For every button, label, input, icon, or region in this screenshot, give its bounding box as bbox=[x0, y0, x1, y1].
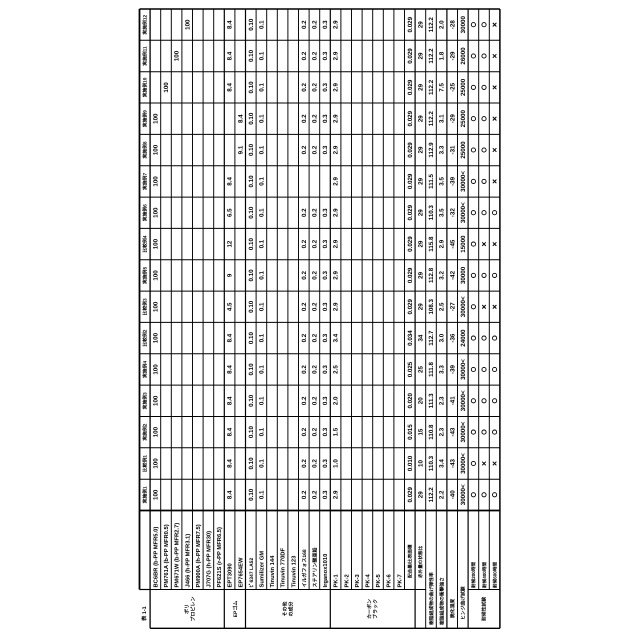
svg-text:0.029: 0.029 bbox=[407, 236, 414, 252]
svg-text:0.029: 0.029 bbox=[407, 110, 414, 126]
svg-text:100: 100 bbox=[153, 301, 160, 312]
svg-text:0.029: 0.029 bbox=[407, 16, 414, 32]
svg-text:0.2: 0.2 bbox=[301, 333, 308, 342]
svg-text:J707G (h-PP MFR30): J707G (h-PP MFR30) bbox=[206, 531, 213, 588]
svg-text:0.2: 0.2 bbox=[312, 83, 319, 92]
svg-text:0.10: 0.10 bbox=[248, 457, 255, 470]
svg-text:0.2: 0.2 bbox=[312, 271, 319, 280]
svg-text:8.4: 8.4 bbox=[227, 51, 234, 60]
svg-text:PK-1: PK-1 bbox=[334, 574, 340, 588]
svg-text:0.2: 0.2 bbox=[312, 208, 319, 217]
svg-text:0.2: 0.2 bbox=[301, 208, 308, 217]
svg-text:2.9: 2.9 bbox=[333, 51, 340, 60]
svg-text:112.2: 112.2 bbox=[428, 48, 435, 64]
svg-text:112.2: 112.2 bbox=[428, 487, 435, 503]
svg-text:100: 100 bbox=[153, 176, 160, 187]
svg-text:0.2: 0.2 bbox=[301, 459, 308, 468]
svg-text:29: 29 bbox=[418, 83, 425, 90]
svg-text:10: 10 bbox=[418, 460, 425, 467]
svg-text:8.4: 8.4 bbox=[227, 333, 234, 342]
svg-text:Sumilizer GM: Sumilizer GM bbox=[259, 551, 266, 588]
svg-text:Tinuvin 123: Tinuvin 123 bbox=[290, 555, 297, 588]
svg-text:耐候400時間: 耐候400時間 bbox=[482, 562, 487, 588]
svg-text:30000<: 30000< bbox=[460, 359, 467, 380]
svg-text:30000<: 30000< bbox=[460, 421, 467, 442]
svg-text:実施例4: 実施例4 bbox=[141, 361, 148, 378]
svg-text:0.1: 0.1 bbox=[259, 114, 266, 123]
svg-text:0.2: 0.2 bbox=[301, 83, 308, 92]
svg-text:0.10: 0.10 bbox=[248, 81, 255, 94]
svg-text:110.3: 110.3 bbox=[428, 455, 435, 471]
svg-text:15000: 15000 bbox=[460, 235, 467, 253]
svg-text:3.2: 3.2 bbox=[439, 271, 446, 280]
svg-text:29: 29 bbox=[418, 240, 425, 247]
svg-text:25: 25 bbox=[418, 366, 425, 373]
svg-text:0.3: 0.3 bbox=[322, 114, 329, 123]
svg-text:PK-5: PK-5 bbox=[376, 574, 382, 588]
svg-text:PF621S (r-PP MFR6.5): PF621S (r-PP MFR6.5) bbox=[216, 527, 223, 588]
svg-text:8.4: 8.4 bbox=[237, 114, 244, 123]
svg-text:26000: 26000 bbox=[460, 47, 467, 65]
svg-text:-39: -39 bbox=[449, 176, 456, 186]
svg-text:配合墨/比表面積: 配合墨/比表面積 bbox=[407, 544, 413, 578]
svg-text:0.2: 0.2 bbox=[301, 490, 308, 499]
svg-text:0.029: 0.029 bbox=[407, 142, 414, 158]
svg-text:実施例5: 実施例5 bbox=[141, 267, 148, 284]
svg-text:2.9: 2.9 bbox=[333, 302, 340, 311]
svg-text:20: 20 bbox=[418, 397, 425, 404]
svg-text:比較例1: 比較例1 bbox=[141, 455, 148, 472]
svg-text:100: 100 bbox=[153, 270, 160, 281]
svg-text:2.9: 2.9 bbox=[333, 177, 340, 186]
svg-text:EP7654EW: EP7654EW bbox=[237, 557, 244, 587]
svg-text:0.2: 0.2 bbox=[301, 114, 308, 123]
svg-text:30000<: 30000< bbox=[460, 484, 467, 505]
svg-text:30000<: 30000< bbox=[460, 296, 467, 317]
svg-text:100: 100 bbox=[153, 332, 160, 343]
svg-text:0.3: 0.3 bbox=[322, 427, 329, 436]
svg-text:0.1: 0.1 bbox=[259, 51, 266, 60]
svg-text:0.2: 0.2 bbox=[312, 396, 319, 405]
svg-text:2.3: 2.3 bbox=[439, 427, 446, 436]
svg-text:30000<: 30000< bbox=[460, 171, 467, 192]
svg-text:4.5: 4.5 bbox=[227, 302, 234, 311]
svg-text:0.3: 0.3 bbox=[322, 365, 329, 374]
svg-text:脆化温度: 脆化温度 bbox=[449, 599, 456, 619]
svg-text:カーボン: カーボン bbox=[366, 599, 373, 619]
svg-text:3.1: 3.1 bbox=[439, 114, 446, 123]
svg-text:0.10: 0.10 bbox=[248, 394, 255, 407]
svg-text:2.0: 2.0 bbox=[333, 396, 340, 405]
svg-text:0.10: 0.10 bbox=[248, 426, 255, 439]
svg-text:112.9: 112.9 bbox=[428, 142, 435, 158]
svg-text:3.5: 3.5 bbox=[439, 208, 446, 217]
svg-text:耐候600時間: 耐候600時間 bbox=[492, 562, 497, 588]
svg-text:7.5: 7.5 bbox=[439, 83, 446, 92]
svg-text:0.2: 0.2 bbox=[312, 302, 319, 311]
svg-text:111.8: 111.8 bbox=[428, 362, 435, 377]
svg-text:0.3: 0.3 bbox=[322, 271, 329, 280]
svg-text:-43: -43 bbox=[449, 458, 456, 468]
svg-text:6.5: 6.5 bbox=[227, 208, 234, 217]
svg-text:25000: 25000 bbox=[460, 141, 467, 159]
svg-text:PK-6: PK-6 bbox=[386, 574, 393, 588]
svg-text:-45: -45 bbox=[449, 239, 456, 249]
svg-text:29: 29 bbox=[418, 115, 425, 122]
svg-text:2.9: 2.9 bbox=[333, 271, 340, 280]
svg-text:PM761A (b-PP MFR0.5): PM761A (b-PP MFR0.5) bbox=[163, 524, 170, 587]
svg-text:110.8: 110.8 bbox=[428, 424, 435, 440]
svg-text:0.2: 0.2 bbox=[301, 271, 308, 280]
svg-text:112.2: 112.2 bbox=[428, 111, 435, 127]
svg-text:29: 29 bbox=[418, 21, 425, 28]
svg-text:110.3: 110.3 bbox=[428, 205, 435, 221]
svg-text:29: 29 bbox=[418, 303, 425, 310]
svg-text:0.1: 0.1 bbox=[259, 177, 266, 186]
svg-text:2.2: 2.2 bbox=[439, 490, 446, 499]
svg-text:0.10: 0.10 bbox=[248, 238, 255, 251]
svg-text:3.4: 3.4 bbox=[439, 459, 446, 468]
svg-text:30000: 30000 bbox=[460, 266, 467, 284]
svg-text:0.3: 0.3 bbox=[322, 333, 329, 342]
svg-text:8.4: 8.4 bbox=[227, 83, 234, 92]
svg-text:112.7: 112.7 bbox=[428, 330, 435, 346]
svg-text:比較例3: 比較例3 bbox=[141, 298, 148, 315]
svg-text:0.3: 0.3 bbox=[322, 396, 329, 405]
svg-text:-41: -41 bbox=[449, 396, 456, 406]
svg-text:30000<: 30000< bbox=[460, 390, 467, 411]
svg-text:0.1: 0.1 bbox=[259, 83, 266, 92]
svg-text:100: 100 bbox=[153, 458, 160, 469]
svg-text:0.2: 0.2 bbox=[301, 239, 308, 248]
svg-text:その他: その他 bbox=[282, 601, 289, 616]
svg-text:0.2: 0.2 bbox=[301, 20, 308, 29]
svg-text:0.029: 0.029 bbox=[407, 267, 414, 283]
svg-text:0.10: 0.10 bbox=[248, 269, 255, 282]
svg-text:0.3: 0.3 bbox=[322, 459, 329, 468]
svg-text:-40: -40 bbox=[449, 490, 456, 500]
svg-text:100: 100 bbox=[153, 113, 160, 124]
svg-text:実施例9: 実施例9 bbox=[141, 110, 148, 127]
svg-text:0.1: 0.1 bbox=[259, 333, 266, 342]
svg-text:0.10: 0.10 bbox=[248, 175, 255, 188]
svg-text:100: 100 bbox=[174, 50, 181, 61]
svg-text:0.10: 0.10 bbox=[248, 143, 255, 156]
svg-text:3.5: 3.5 bbox=[439, 177, 446, 186]
svg-text:の成分: の成分 bbox=[288, 601, 295, 616]
svg-text:イルガフォス168: イルガフォス168 bbox=[301, 549, 308, 587]
svg-text:0.10: 0.10 bbox=[248, 363, 255, 376]
svg-text:100: 100 bbox=[153, 426, 160, 437]
svg-text:表 1-1: 表 1-1 bbox=[141, 606, 148, 622]
svg-text:2.9: 2.9 bbox=[333, 83, 340, 92]
svg-text:実施例8: 実施例8 bbox=[141, 141, 148, 158]
svg-text:108.3: 108.3 bbox=[428, 298, 435, 314]
svg-text:-31: -31 bbox=[449, 145, 456, 155]
svg-text:0.1: 0.1 bbox=[259, 20, 266, 29]
svg-text:実施例6: 実施例6 bbox=[141, 204, 148, 221]
svg-text:29: 29 bbox=[418, 52, 425, 59]
svg-text:-32: -32 bbox=[449, 208, 456, 218]
svg-text:0.2: 0.2 bbox=[312, 365, 319, 374]
svg-text:112.8: 112.8 bbox=[428, 267, 435, 283]
svg-text:0.1: 0.1 bbox=[259, 302, 266, 311]
svg-text:0.3: 0.3 bbox=[322, 51, 329, 60]
svg-text:100: 100 bbox=[153, 207, 160, 218]
svg-text:0.1: 0.1 bbox=[259, 365, 266, 374]
svg-text:29: 29 bbox=[418, 209, 425, 216]
svg-text:実施例7: 実施例7 bbox=[141, 173, 148, 190]
svg-text:29: 29 bbox=[418, 491, 425, 498]
svg-text:8.4: 8.4 bbox=[227, 20, 234, 29]
svg-text:-25: -25 bbox=[449, 82, 456, 92]
svg-text:0.2: 0.2 bbox=[301, 302, 308, 311]
svg-text:100: 100 bbox=[163, 82, 170, 93]
svg-text:-36: -36 bbox=[449, 333, 456, 343]
svg-text:115.8: 115.8 bbox=[428, 236, 435, 252]
svg-text:8.4: 8.4 bbox=[227, 459, 234, 468]
svg-text:3.4: 3.4 bbox=[333, 333, 340, 342]
svg-text:0.029: 0.029 bbox=[407, 48, 414, 64]
svg-text:PM900A (h-PP MFR7.5): PM900A (h-PP MFR7.5) bbox=[195, 524, 202, 587]
svg-text:0.2: 0.2 bbox=[312, 239, 319, 248]
svg-text:100: 100 bbox=[184, 19, 191, 30]
svg-text:PM671W (b-PP MFR2.7): PM671W (b-PP MFR2.7) bbox=[174, 523, 181, 588]
svg-text:J466 (h-PP MFR3.1): J466 (h-PP MFR3.1) bbox=[184, 534, 191, 588]
svg-text:29: 29 bbox=[418, 177, 425, 184]
svg-text:30000: 30000 bbox=[460, 16, 467, 34]
svg-text:0.3: 0.3 bbox=[322, 490, 329, 499]
svg-text:-43: -43 bbox=[449, 427, 456, 437]
svg-text:PK-7: PK-7 bbox=[397, 574, 403, 587]
svg-text:2.9: 2.9 bbox=[333, 145, 340, 154]
svg-text:8.4: 8.4 bbox=[227, 490, 234, 499]
svg-text:100: 100 bbox=[153, 238, 160, 249]
svg-text:100: 100 bbox=[153, 395, 160, 406]
svg-text:2.9: 2.9 bbox=[333, 490, 340, 499]
svg-text:25000: 25000 bbox=[460, 110, 467, 128]
svg-text:2.5: 2.5 bbox=[439, 302, 446, 311]
svg-text:0.3: 0.3 bbox=[322, 83, 329, 92]
svg-text:12: 12 bbox=[227, 240, 234, 247]
svg-text:0.10: 0.10 bbox=[248, 112, 255, 125]
svg-text:0.029: 0.029 bbox=[407, 173, 414, 189]
svg-text:8.4: 8.4 bbox=[227, 427, 234, 436]
svg-text:0.010: 0.010 bbox=[407, 455, 414, 471]
svg-text:29: 29 bbox=[418, 146, 425, 153]
svg-text:100: 100 bbox=[153, 489, 160, 500]
svg-text:実施例3: 実施例3 bbox=[141, 392, 148, 409]
svg-text:3.3: 3.3 bbox=[439, 145, 446, 154]
svg-text:25000: 25000 bbox=[460, 78, 467, 96]
svg-text:2.9: 2.9 bbox=[333, 20, 340, 29]
svg-text:比較例4: 比較例4 bbox=[141, 235, 148, 252]
svg-text:ブラック: ブラック bbox=[372, 599, 379, 619]
svg-text:0.10: 0.10 bbox=[248, 206, 255, 219]
svg-text:0.1: 0.1 bbox=[259, 271, 266, 280]
svg-text:2.0: 2.0 bbox=[439, 20, 446, 29]
svg-text:2.9: 2.9 bbox=[333, 114, 340, 123]
svg-text:0.1: 0.1 bbox=[259, 145, 266, 154]
svg-text:30000<: 30000< bbox=[460, 453, 467, 474]
svg-text:0.2: 0.2 bbox=[301, 51, 308, 60]
svg-text:-27: -27 bbox=[449, 302, 456, 312]
svg-text:112.2: 112.2 bbox=[428, 17, 435, 33]
svg-text:0.1: 0.1 bbox=[259, 396, 266, 405]
svg-text:0.1: 0.1 bbox=[259, 239, 266, 248]
svg-text:1.5: 1.5 bbox=[333, 427, 340, 436]
svg-text:0.1: 0.1 bbox=[259, 490, 266, 499]
svg-text:8.4: 8.4 bbox=[227, 396, 234, 405]
svg-text:0.2: 0.2 bbox=[312, 333, 319, 342]
svg-text:34: 34 bbox=[418, 334, 425, 341]
svg-text:9: 9 bbox=[227, 273, 234, 277]
svg-text:0.1: 0.1 bbox=[259, 208, 266, 217]
svg-text:8.4: 8.4 bbox=[227, 177, 234, 186]
svg-text:0.10: 0.10 bbox=[248, 18, 255, 31]
svg-text:0.020: 0.020 bbox=[407, 392, 414, 408]
svg-text:2.5: 2.5 bbox=[333, 365, 340, 374]
svg-text:耐候200時間: 耐候200時間 bbox=[471, 562, 476, 588]
svg-text:111.3: 111.3 bbox=[428, 393, 435, 408]
svg-text:0.029: 0.029 bbox=[407, 298, 414, 314]
svg-text:PK-3: PK-3 bbox=[354, 574, 361, 588]
svg-text:0.1: 0.1 bbox=[259, 427, 266, 436]
svg-text:-29: -29 bbox=[449, 51, 456, 61]
svg-text:0.029: 0.029 bbox=[407, 204, 414, 220]
svg-text:0.10: 0.10 bbox=[248, 300, 255, 313]
svg-text:2.9: 2.9 bbox=[439, 239, 446, 248]
svg-text:0.2: 0.2 bbox=[312, 145, 319, 154]
svg-text:樹脂組成物の衝撃強さ: 樹脂組成物の衝撃強さ bbox=[438, 577, 445, 625]
svg-text:0.2: 0.2 bbox=[301, 396, 308, 405]
svg-text:Tinuvin 144: Tinuvin 144 bbox=[269, 555, 276, 588]
svg-text:112.2: 112.2 bbox=[428, 79, 435, 95]
svg-text:30000<: 30000< bbox=[460, 202, 467, 223]
svg-text:0.3: 0.3 bbox=[322, 239, 329, 248]
svg-text:Tinuvin 770DF: Tinuvin 770DF bbox=[280, 548, 287, 588]
svg-text:0.10: 0.10 bbox=[248, 488, 255, 501]
svg-text:0.3: 0.3 bbox=[322, 145, 329, 154]
svg-text:0.2: 0.2 bbox=[312, 20, 319, 29]
svg-text:実施例2: 実施例2 bbox=[141, 423, 148, 440]
svg-text:赤外量の状態比: 赤外量の状態比 bbox=[417, 545, 423, 578]
svg-text:0.2: 0.2 bbox=[312, 459, 319, 468]
svg-text:BC6BR (b-PP MFR5.0): BC6BR (b-PP MFR5.0) bbox=[153, 527, 160, 588]
svg-text:2.3: 2.3 bbox=[439, 396, 446, 405]
svg-text:100: 100 bbox=[153, 364, 160, 375]
svg-text:実施例11: 実施例11 bbox=[141, 46, 148, 66]
svg-text:Irganox1010: Irganox1010 bbox=[322, 554, 329, 588]
svg-text:111.5: 111.5 bbox=[428, 173, 435, 188]
svg-text:0.2: 0.2 bbox=[312, 51, 319, 60]
svg-text:実施例12: 実施例12 bbox=[141, 15, 148, 35]
svg-text:0.2: 0.2 bbox=[312, 427, 319, 436]
svg-text:0.2: 0.2 bbox=[301, 365, 308, 374]
svg-text:-29: -29 bbox=[449, 114, 456, 124]
svg-text:2.9: 2.9 bbox=[333, 208, 340, 217]
svg-text:EPT3090: EPT3090 bbox=[227, 563, 234, 587]
svg-text:0.029: 0.029 bbox=[407, 486, 414, 502]
svg-text:0.1: 0.1 bbox=[259, 459, 266, 468]
svg-text:EPゴム: EPゴム bbox=[232, 601, 239, 618]
svg-text:1.8: 1.8 bbox=[439, 51, 446, 60]
svg-text:9.1: 9.1 bbox=[237, 145, 244, 154]
svg-text:0.025: 0.025 bbox=[407, 361, 414, 377]
svg-text:-42: -42 bbox=[449, 270, 456, 280]
svg-text:29: 29 bbox=[418, 271, 425, 278]
svg-text:-28: -28 bbox=[449, 20, 456, 30]
svg-text:0.015: 0.015 bbox=[407, 424, 414, 440]
svg-text:3.0: 3.0 bbox=[439, 333, 446, 342]
svg-text:0.2: 0.2 bbox=[301, 427, 308, 436]
svg-text:ヒンジ曲げ試験: ヒンジ曲げ試験 bbox=[460, 586, 467, 620]
svg-text:比較例2: 比較例2 bbox=[141, 329, 148, 346]
svg-text:24000: 24000 bbox=[460, 329, 467, 347]
svg-text:0.10: 0.10 bbox=[248, 332, 255, 345]
svg-text:100: 100 bbox=[153, 144, 160, 155]
svg-text:0.2: 0.2 bbox=[312, 114, 319, 123]
svg-text:実施例1: 実施例1 bbox=[141, 486, 148, 503]
svg-text:3.3: 3.3 bbox=[439, 365, 446, 374]
svg-text:0.3: 0.3 bbox=[322, 302, 329, 311]
svg-text:1.0: 1.0 bbox=[333, 459, 340, 468]
svg-text:ステアリン酸亜鉛: ステアリン酸亜鉛 bbox=[312, 547, 319, 587]
svg-text:0.029: 0.029 bbox=[407, 79, 414, 95]
svg-text:実施例10: 実施例10 bbox=[141, 77, 148, 97]
svg-text:8.4: 8.4 bbox=[227, 365, 234, 374]
svg-text:0.3: 0.3 bbox=[322, 208, 329, 217]
svg-text:耐候性試験: 耐候性試験 bbox=[481, 597, 488, 621]
svg-text:PK-2: PK-2 bbox=[343, 574, 350, 587]
svg-text:PK-4: PK-4 bbox=[366, 574, 372, 588]
svg-text:0.2: 0.2 bbox=[312, 490, 319, 499]
svg-text:-39: -39 bbox=[449, 364, 456, 374]
svg-text:0.2: 0.2 bbox=[301, 145, 308, 154]
svg-text:15: 15 bbox=[418, 428, 425, 435]
svg-text:2.9: 2.9 bbox=[333, 239, 340, 248]
svg-text:ポリ: ポリ bbox=[184, 604, 191, 614]
svg-text:樹脂組成物の曲げ弾性率: 樹脂組成物の曲げ弾性率 bbox=[428, 572, 435, 625]
svg-text:プロピレン: プロピレン bbox=[190, 596, 197, 621]
svg-text:0.3: 0.3 bbox=[322, 20, 329, 29]
svg-text:0.10: 0.10 bbox=[248, 49, 255, 62]
svg-text:ﾋﾟ6347 LA52: ﾋﾟ6347 LA52 bbox=[248, 558, 255, 588]
svg-text:0.034: 0.034 bbox=[407, 330, 414, 346]
